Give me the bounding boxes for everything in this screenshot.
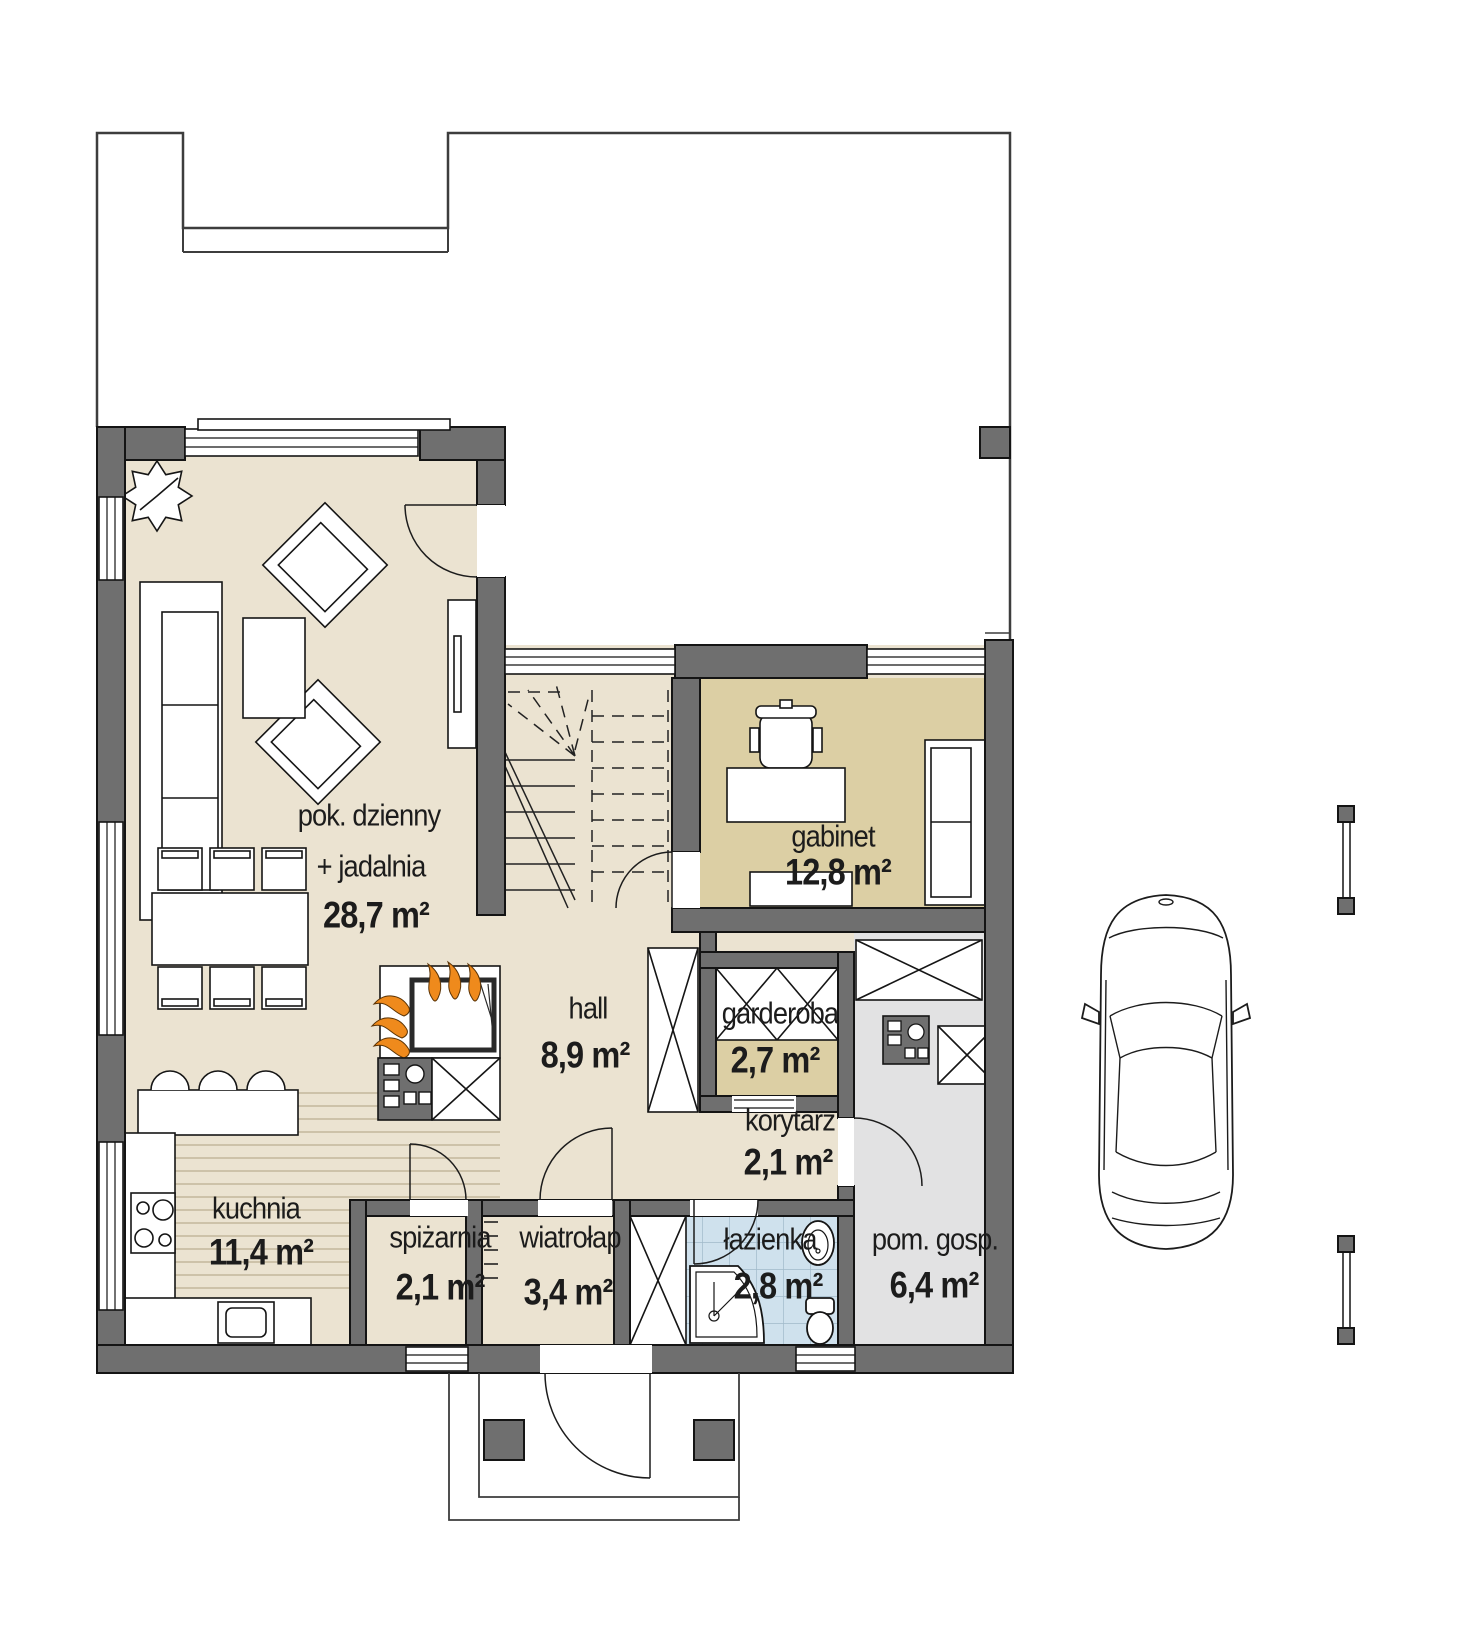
label-garderoba-area: 2,7 m² [731,1042,820,1079]
label-living-name: pok. dzienny [298,800,441,831]
car-icon [1082,895,1250,1249]
coffee-table [243,618,305,718]
label-lazienka-name: łazienka [723,1224,816,1255]
window [406,1347,468,1371]
porch-post [694,1420,734,1460]
gate-posts [1338,806,1354,1344]
window [99,822,123,1035]
dining-table-set [152,848,308,1009]
entrance-door [545,1373,650,1478]
label-living-name2: + jadalnia [317,851,426,882]
window [185,429,418,456]
porch-post [484,1420,524,1460]
window [99,1142,123,1310]
floor-plan-drawing [0,0,1463,1651]
window [796,1347,855,1371]
label-wiatrolap-area: 3,4 m² [524,1274,613,1311]
label-gabinet-area: 12,8 m² [785,854,891,891]
fridge-cabinet [432,1058,500,1120]
wiatrolap-wardrobe [630,1216,686,1345]
label-kuchnia-name: kuchnia [212,1193,300,1224]
bar-counter [138,1071,298,1135]
label-spizarnia-name: spiżarnia [389,1222,490,1253]
label-kuchnia-area: 11,4 m² [209,1234,313,1271]
label-hall-name: hall [569,993,608,1024]
label-korytarz-name: korytarz [745,1105,835,1136]
label-spizarnia-area: 2,1 m² [396,1269,485,1306]
outside-area [505,427,985,645]
window-sill [198,419,450,430]
label-pom-gosp-area: 6,4 m² [890,1267,979,1304]
gabinet-sofa [925,740,985,905]
label-wiatrolap-name: wiatrołap [519,1222,620,1253]
pom-gosp-cabinet [856,940,982,1000]
office-chair [750,700,822,768]
label-living-area: 28,7 m² [323,897,429,934]
hall-wardrobe [648,948,698,1112]
fireplace-kitchen-block [372,962,500,1120]
window [99,497,123,580]
floor-plan: pok. dzienny + jadalnia 28,7 m² gabinet … [0,0,1463,1651]
label-hall-area: 8,9 m² [541,1037,630,1074]
label-garderoba-name: garderoba [722,998,838,1029]
label-korytarz-area: 2,1 m² [744,1144,833,1181]
window [867,649,985,674]
window [505,649,675,674]
tv-cabinet [448,600,476,748]
label-lazienka-area: 2,8 m² [734,1268,823,1305]
label-gabinet-name: gabinet [791,821,874,852]
sink-icon [218,1302,274,1343]
desk [727,768,845,822]
label-pom-gosp-name: pom. gosp. [872,1224,998,1255]
stove-icon [131,1193,175,1253]
